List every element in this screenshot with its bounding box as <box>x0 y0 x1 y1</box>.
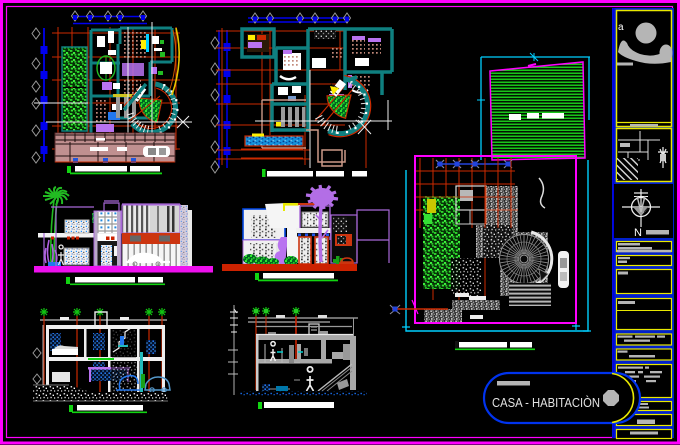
svg-text:CASA - HABITACIÒN: CASA - HABITACIÒN <box>492 395 600 410</box>
svg-text:N: N <box>634 227 642 239</box>
svg-text:a: a <box>618 22 624 33</box>
